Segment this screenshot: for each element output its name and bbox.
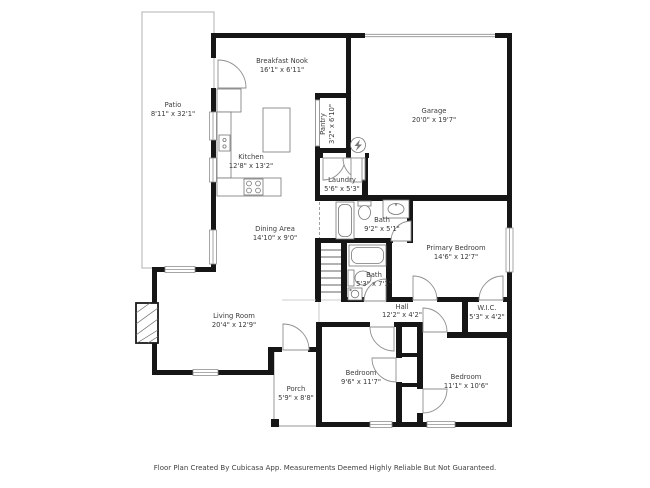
- room-label-laundry: Laundry: [328, 176, 356, 184]
- door-swing: [218, 60, 246, 88]
- room-dims-patio: 8'11" x 32'1": [151, 110, 195, 118]
- room-label-garage: Garage: [422, 107, 447, 115]
- door-swing: [413, 276, 437, 300]
- floor-plan-svg: Patio 8'11" x 32'1" Breakfast Nook 16'1"…: [0, 0, 650, 488]
- room-dims-breakfast-nook: 16'1" x 6'11": [260, 66, 304, 74]
- floor-plan-page: Patio 8'11" x 32'1" Breakfast Nook 16'1"…: [0, 0, 650, 488]
- room-dims-dining: 14'10" x 9'0": [253, 234, 297, 242]
- room-label-wic: W.I.C.: [477, 304, 496, 312]
- window: [193, 370, 218, 376]
- room-label-breakfast-nook: Breakfast Nook: [256, 57, 308, 65]
- window: [506, 228, 513, 272]
- window: [370, 422, 392, 428]
- room-dims-bedroom-right: 11'1" x 10'6": [444, 382, 488, 390]
- fridge-icon: [217, 89, 241, 112]
- room-dims-bath-upper: 9'2" x 5'1": [364, 225, 400, 233]
- room-dims-wic: 5'3" x 4'2": [469, 313, 505, 321]
- room-label-porch: Porch: [287, 385, 306, 393]
- door-swing: [423, 389, 447, 413]
- room-dims-porch: 5'9" x 8'8": [278, 394, 314, 402]
- opening-lines: [282, 300, 341, 322]
- room-dims-laundry: 5'6" x 5'3": [324, 185, 360, 193]
- room-dims-primary-bedroom: 14'6" x 12'7": [434, 253, 478, 261]
- sink-icon: [348, 288, 362, 300]
- patio-slider-window: [165, 267, 195, 273]
- porch-post: [271, 419, 279, 427]
- room-label-pantry-group: Pantry 3'2" x 6'10": [319, 104, 336, 144]
- room-dims-bedroom-left: 9'6" x 11'7": [341, 378, 381, 386]
- window: [210, 112, 217, 140]
- room-label-patio: Patio: [165, 101, 182, 109]
- room-label-pantry: Pantry: [319, 113, 327, 135]
- garage-door: [365, 34, 495, 38]
- room-label-living: Living Room: [213, 312, 255, 320]
- water-heater-icon: [351, 138, 366, 153]
- window: [210, 158, 217, 182]
- window: [427, 422, 455, 428]
- window: [210, 230, 217, 264]
- room-dims-bath-lower: 5'3" x 7'1": [356, 280, 392, 288]
- bathtub-icon: [336, 202, 354, 239]
- room-dims-garage: 20'0" x 19'7": [412, 116, 456, 124]
- door-swing: [479, 276, 503, 300]
- room-dims-pantry: 3'2" x 6'10": [328, 104, 336, 144]
- door-swing: [283, 324, 309, 350]
- footer-disclaimer: Floor Plan Created By Cubicasa App. Meas…: [154, 464, 497, 472]
- kitchen-island: [263, 108, 290, 152]
- room-label-bath-lower: Bath: [366, 271, 382, 279]
- room-label-hall: Hall: [395, 303, 408, 311]
- room-label-primary-bedroom: Primary Bedroom: [426, 244, 486, 252]
- room-label-kitchen: Kitchen: [238, 153, 264, 161]
- door-swing: [423, 308, 447, 332]
- door-swing: [370, 327, 394, 351]
- room-dims-living: 20'4" x 12'9": [212, 321, 256, 329]
- bathtub-icon: [349, 245, 386, 266]
- stove-icon: [244, 179, 263, 195]
- patio-outline: [142, 12, 214, 268]
- room-dims-kitchen: 12'8" x 13'2": [229, 162, 273, 170]
- room-dims-hall: 12'2" x 4'2": [382, 311, 422, 319]
- kitchen-sink-icon: [219, 135, 230, 151]
- toilet-icon: [358, 201, 371, 220]
- room-label-bedroom-right: Bedroom: [451, 373, 482, 381]
- room-label-dining: Dining Area: [255, 225, 295, 233]
- fireplace-icon: [136, 303, 158, 343]
- room-label-bedroom-left: Bedroom: [346, 369, 377, 377]
- room-label-bath-upper: Bath: [374, 216, 390, 224]
